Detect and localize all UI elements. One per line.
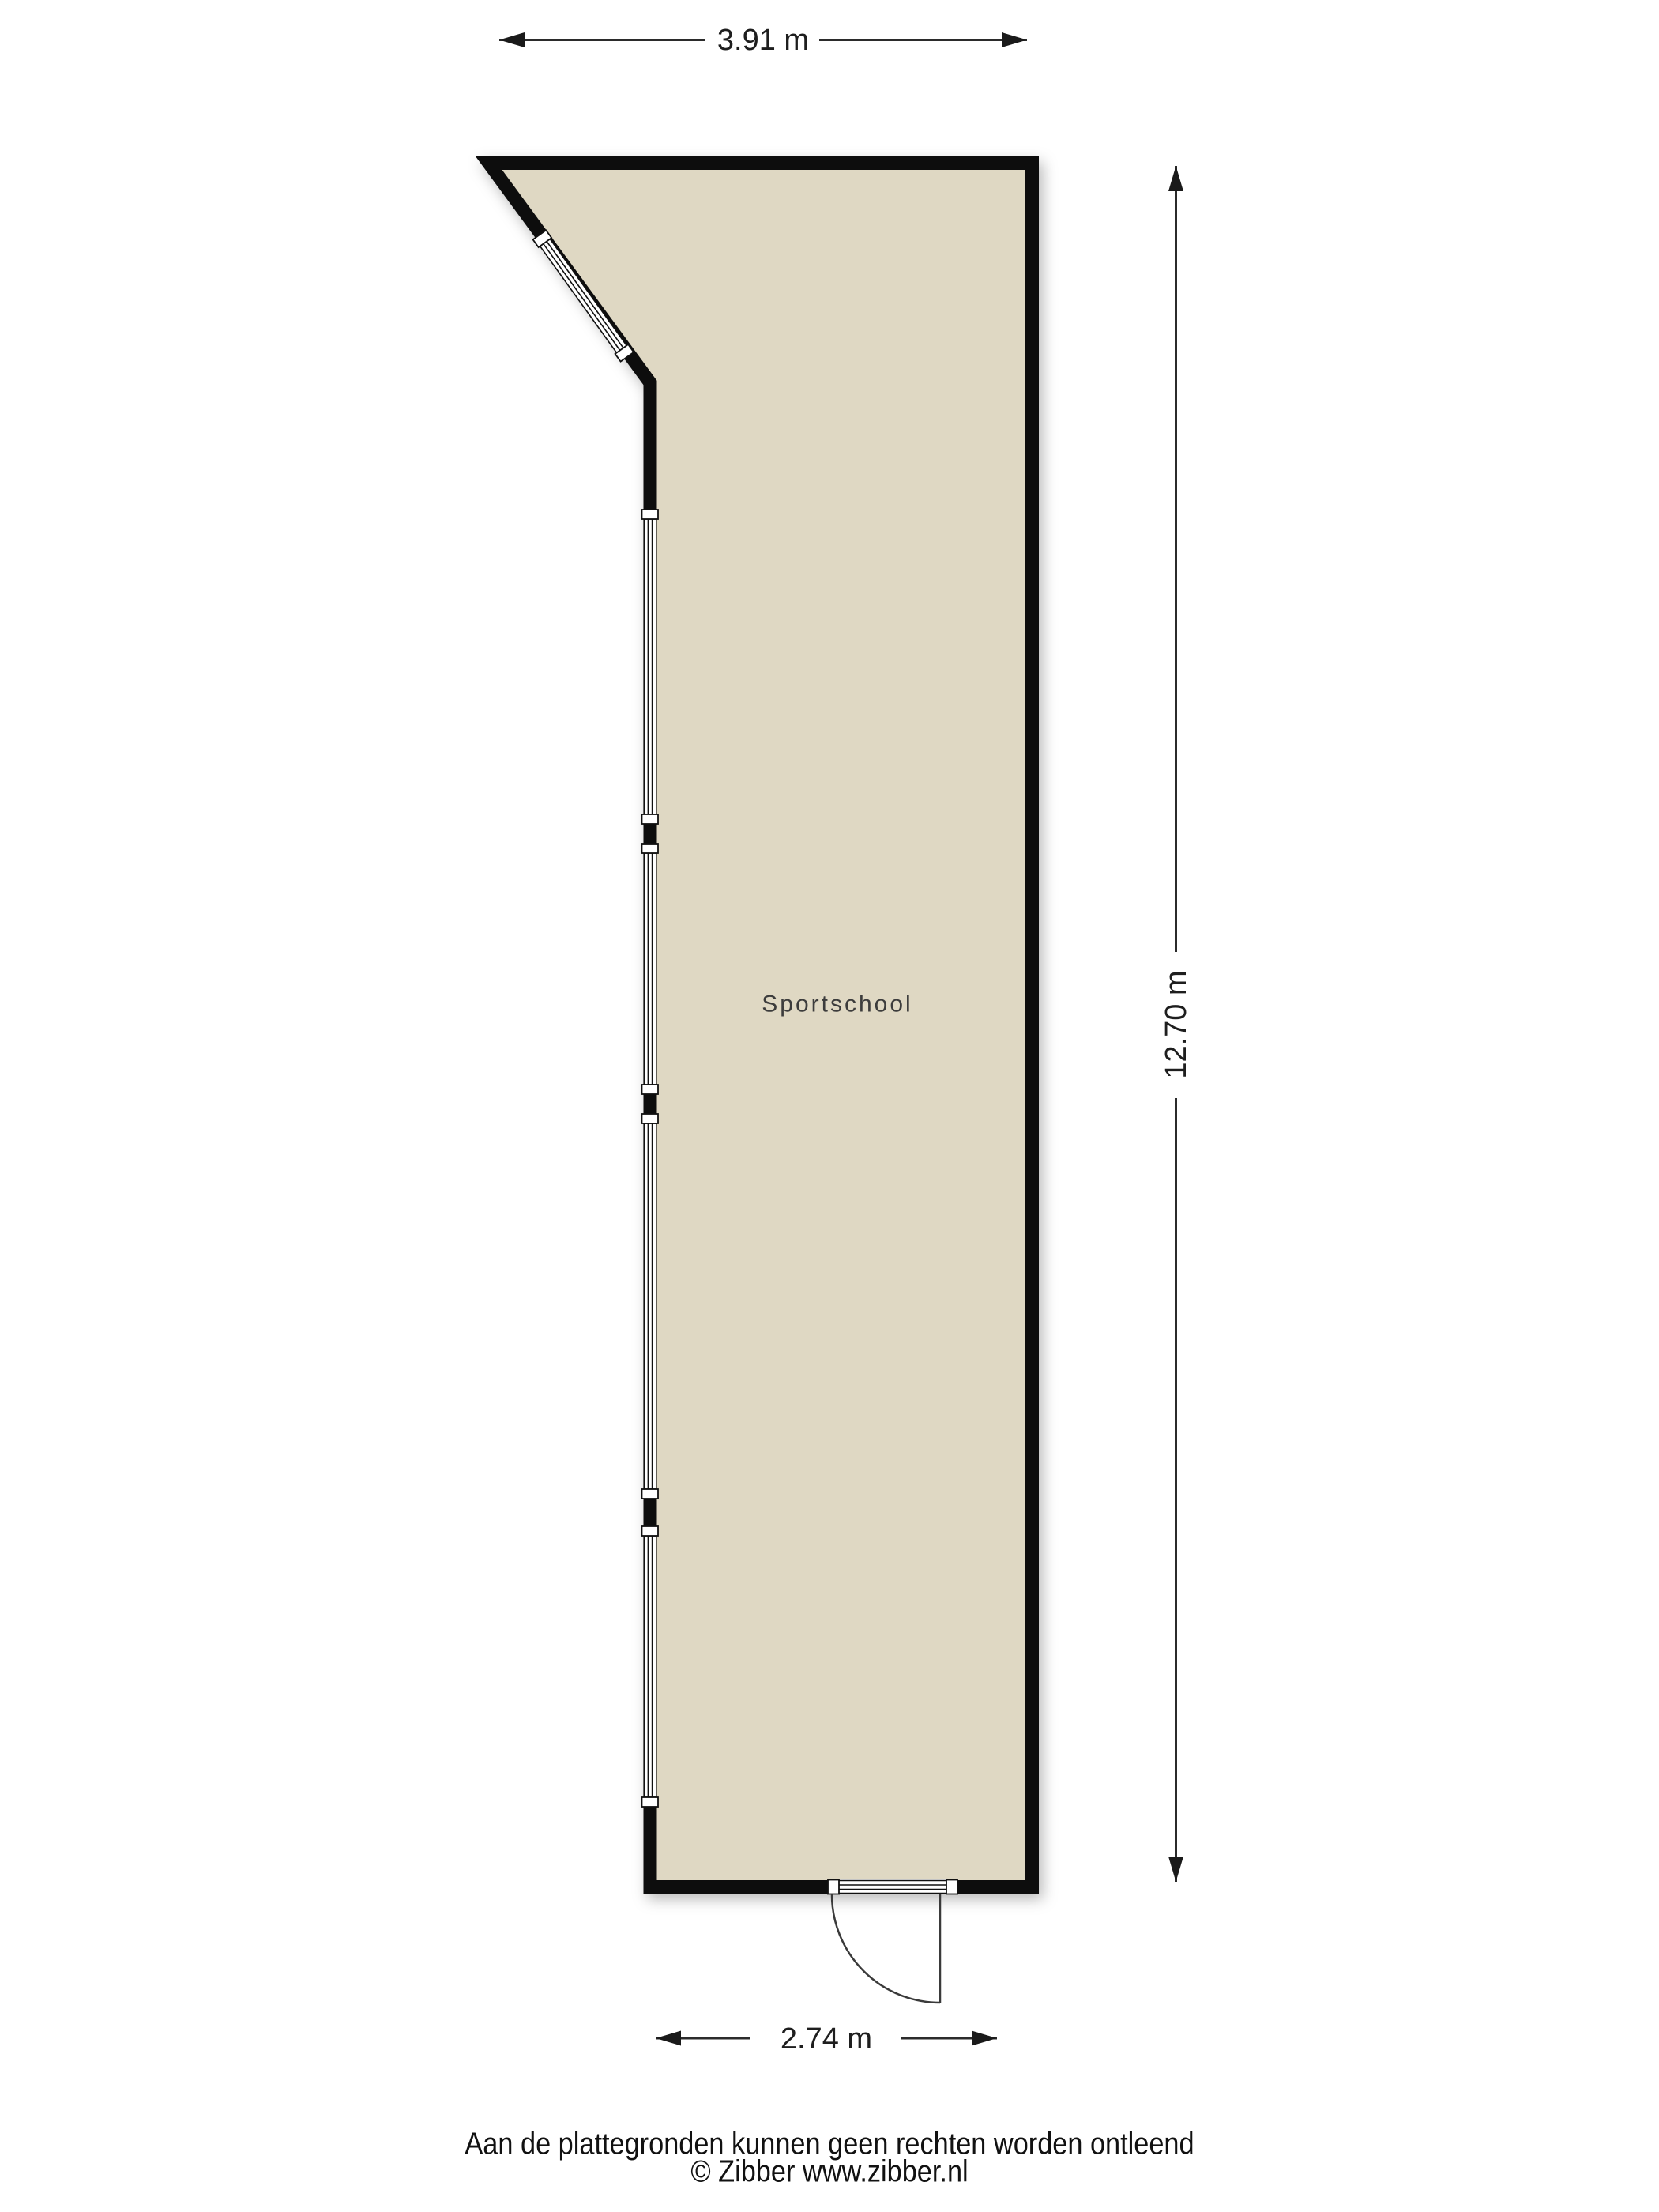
left-wall-windows xyxy=(642,510,659,1807)
window xyxy=(642,844,659,1094)
footer-copyright: © Zibber www.zibber.nl xyxy=(690,2154,968,2188)
arrowhead-right xyxy=(1002,32,1027,47)
arrowhead-left xyxy=(656,2031,681,2046)
window-sill xyxy=(642,1114,659,1123)
arrowhead-down xyxy=(1168,1856,1183,1882)
window-sill xyxy=(642,1085,659,1094)
floorplan-canvas: 3.91 m 12.70 m 2.74 m Sportschool Aan de… xyxy=(0,0,1659,2212)
window-glazing xyxy=(644,853,656,1085)
room-outline xyxy=(489,164,1033,1887)
window-sill xyxy=(642,814,659,824)
window xyxy=(642,1526,659,1807)
arrowhead-up xyxy=(1168,166,1183,191)
door-threshold xyxy=(828,1879,957,1894)
window-sill xyxy=(642,510,659,519)
dimension-right-label: 12.70 m xyxy=(1160,970,1193,1078)
door-jamb xyxy=(828,1880,839,1894)
door xyxy=(828,1879,957,2003)
door-jamb xyxy=(946,1880,957,1894)
floorplan-page: 3.91 m 12.70 m 2.74 m Sportschool Aan de… xyxy=(0,0,1659,2212)
arrowhead-left xyxy=(499,32,525,47)
dimension-top-label: 3.91 m xyxy=(717,24,809,57)
window-glazing xyxy=(644,1123,656,1489)
dimension-bottom-label: 2.74 m xyxy=(781,2022,872,2056)
window-sill xyxy=(642,1797,659,1807)
window-glazing xyxy=(644,519,656,814)
window xyxy=(642,1114,659,1499)
window-glazing xyxy=(644,1536,656,1797)
window xyxy=(642,510,659,824)
arrowhead-right xyxy=(972,2031,997,2046)
window-sill xyxy=(642,844,659,853)
door-swing-arc xyxy=(832,1894,940,2003)
window-sill xyxy=(642,1526,659,1536)
window-sill xyxy=(642,1489,659,1499)
building xyxy=(489,164,1033,1887)
room-label: Sportschool xyxy=(762,991,912,1018)
